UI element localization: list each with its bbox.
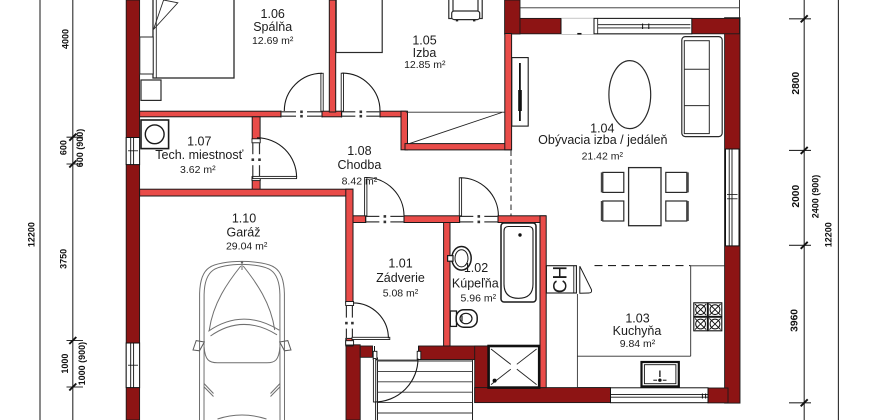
svg-text:3750: 3750	[59, 249, 69, 269]
svg-text:9.84 m²: 9.84 m²	[620, 338, 656, 350]
svg-text:8.42 m²: 8.42 m²	[342, 175, 378, 187]
svg-text:1000 (900): 1000 (900)	[77, 342, 87, 386]
svg-text:CH: CH	[551, 266, 572, 293]
svg-text:2800: 2800	[791, 71, 802, 94]
svg-text:21.42 m²: 21.42 m²	[582, 151, 624, 163]
svg-text:Kúpeľňa: Kúpeľňa	[452, 276, 499, 290]
svg-text:29.04 m²: 29.04 m²	[226, 241, 268, 253]
svg-text:600 (900): 600 (900)	[75, 129, 85, 168]
svg-text:1.01: 1.01	[388, 256, 412, 270]
svg-text:Tech. miestnosť: Tech. miestnosť	[155, 148, 243, 162]
svg-text:4000: 4000	[61, 29, 71, 49]
svg-text:3.62 m²: 3.62 m²	[180, 164, 216, 176]
svg-text:12.85 m²: 12.85 m²	[404, 59, 446, 71]
svg-text:Izba: Izba	[413, 46, 437, 60]
svg-text:Garáž: Garáž	[226, 225, 260, 239]
svg-text:2400 (900): 2400 (900)	[811, 175, 821, 219]
svg-text:Zádverie: Zádverie	[376, 271, 425, 285]
svg-text:12200: 12200	[27, 222, 37, 247]
svg-text:2000: 2000	[791, 184, 802, 207]
svg-text:Chodba: Chodba	[338, 158, 382, 172]
svg-text:1.07: 1.07	[187, 135, 211, 149]
svg-text:12.69 m²: 12.69 m²	[252, 35, 294, 47]
svg-text:5.08 m²: 5.08 m²	[383, 288, 419, 300]
svg-text:12200: 12200	[823, 222, 833, 247]
svg-text:5.96 m²: 5.96 m²	[460, 293, 496, 305]
svg-text:Spálňa: Spálňa	[253, 20, 292, 34]
svg-text:1000: 1000	[60, 354, 70, 374]
svg-text:1.08: 1.08	[347, 144, 371, 158]
svg-text:Kuchyňa: Kuchyňa	[613, 324, 662, 338]
svg-text:600: 600	[58, 140, 68, 155]
svg-text:3960: 3960	[790, 309, 801, 332]
svg-text:1.02: 1.02	[464, 261, 488, 275]
svg-text:Obývacia izba / jedáleň: Obývacia izba / jedáleň	[538, 133, 667, 147]
svg-text:1.10: 1.10	[232, 212, 256, 226]
